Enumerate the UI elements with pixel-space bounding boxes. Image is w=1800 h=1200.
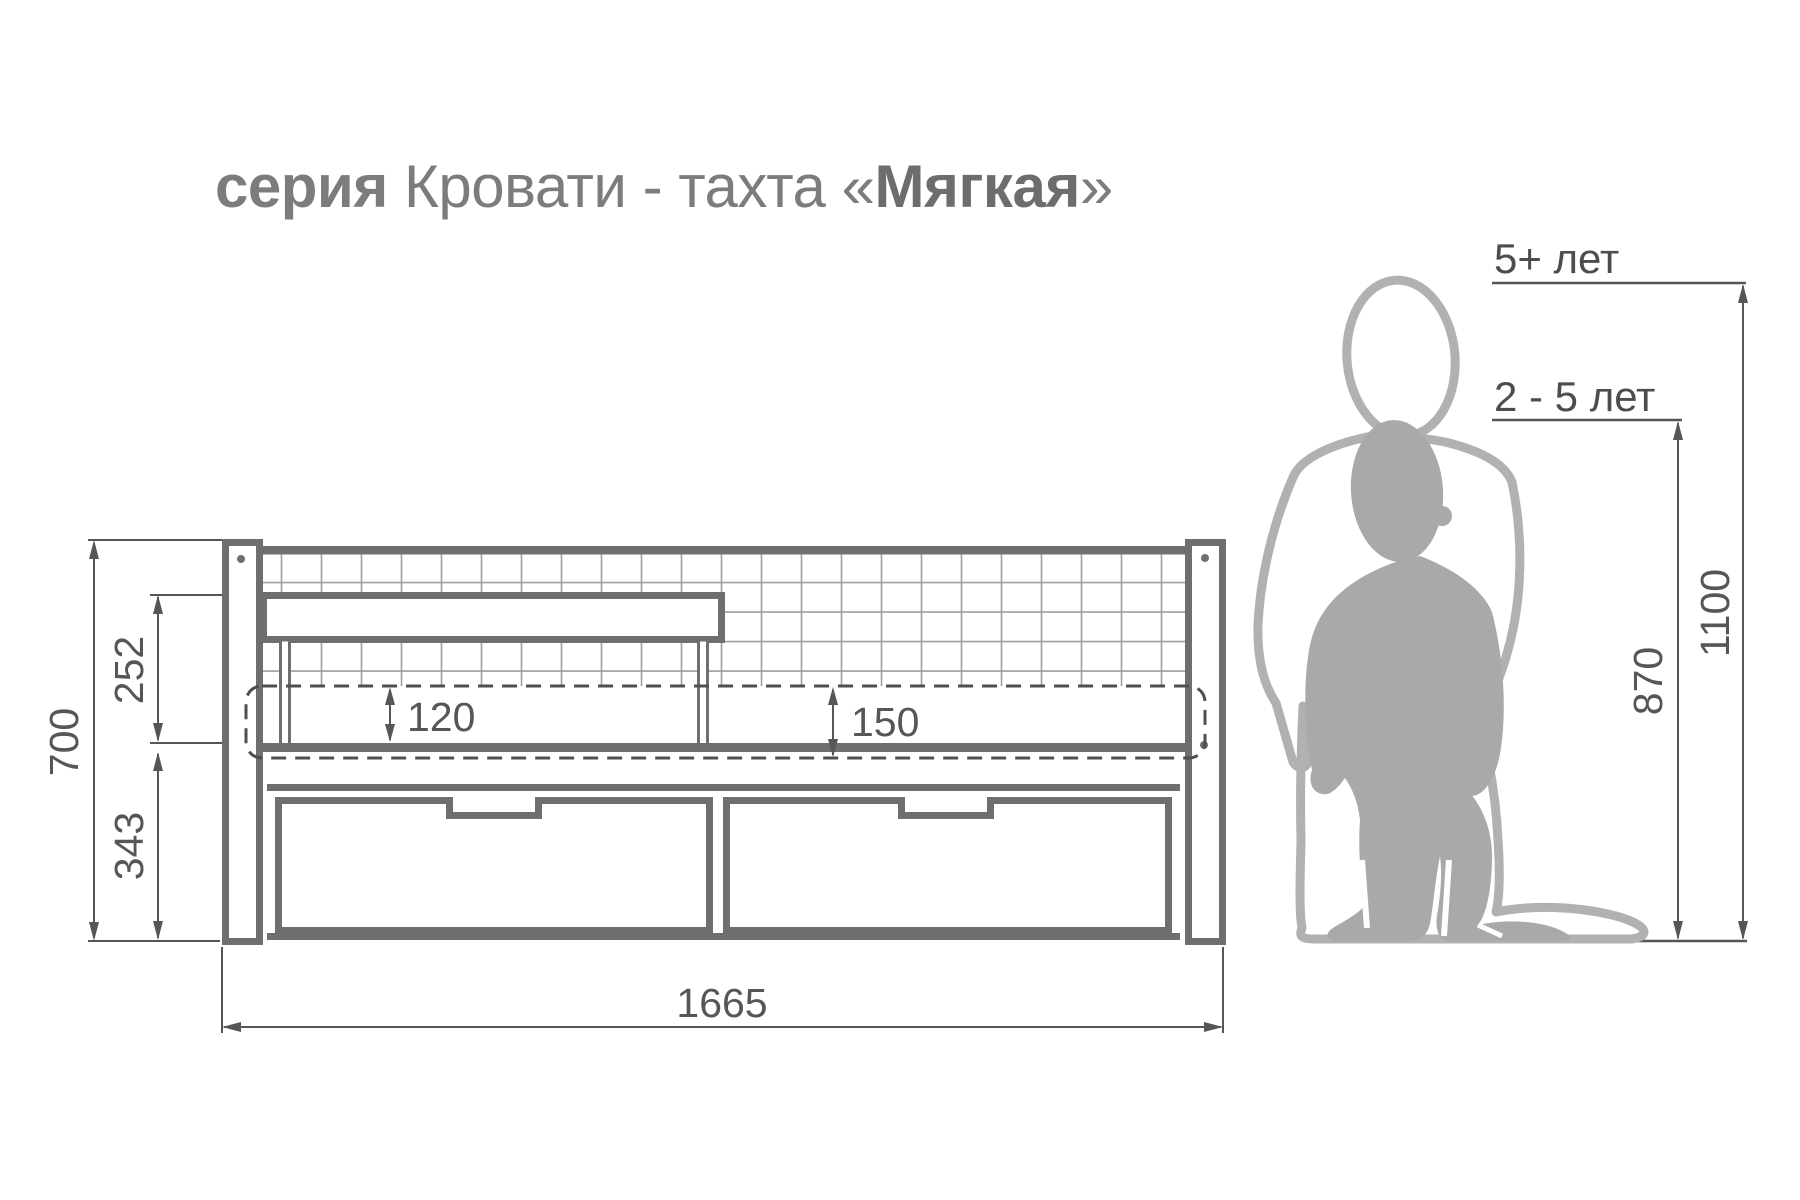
label-child-older-height: 1100 xyxy=(1692,569,1738,657)
title-product-name: Мягкая xyxy=(874,153,1079,220)
label-mattress-above: 120 xyxy=(407,694,475,740)
title-quote-open: « xyxy=(842,153,875,220)
dimension-mattress-above xyxy=(385,687,395,742)
cabinet-bottom-rail xyxy=(267,933,1180,940)
label-total-height: 700 xyxy=(41,708,87,776)
label-child-younger-height: 870 xyxy=(1625,647,1671,715)
younger-child-ear xyxy=(1432,506,1452,526)
label-mattress-thickness: 150 xyxy=(851,699,919,745)
cabinet-top-rail xyxy=(267,784,1180,791)
furniture-dimension-diagram: серия Кровати - тахта «Мягкая» xyxy=(0,0,1800,1200)
board-support-slat-left xyxy=(281,640,290,746)
label-under-seat-height: 343 xyxy=(106,812,152,880)
page-title: серия Кровати - тахта «Мягкая» xyxy=(215,156,1113,218)
dimension-under-seat xyxy=(153,752,163,940)
dimension-backrest xyxy=(150,595,222,743)
age-label-older: 5+ лет xyxy=(1494,235,1619,282)
armrest-board xyxy=(264,596,722,640)
older-child-head xyxy=(1340,276,1461,441)
age-label-younger: 2 - 5 лет xyxy=(1494,373,1655,420)
title-series-name: Кровати - тахта xyxy=(404,153,825,220)
bed-post-left xyxy=(226,543,260,942)
post-screw-right xyxy=(1201,554,1209,562)
drawer-right xyxy=(727,801,1169,931)
board-support-slat-right xyxy=(699,640,708,746)
top-rail xyxy=(260,546,1185,555)
title-quote-close: » xyxy=(1080,153,1113,220)
title-series-prefix: серия xyxy=(215,153,388,220)
label-total-length: 1665 xyxy=(676,980,767,1026)
post-screw-left xyxy=(237,555,245,563)
seat-rail xyxy=(260,743,1185,752)
drawer-left xyxy=(279,801,710,931)
label-backrest-height: 252 xyxy=(106,636,152,704)
bed-frame xyxy=(226,543,1223,942)
